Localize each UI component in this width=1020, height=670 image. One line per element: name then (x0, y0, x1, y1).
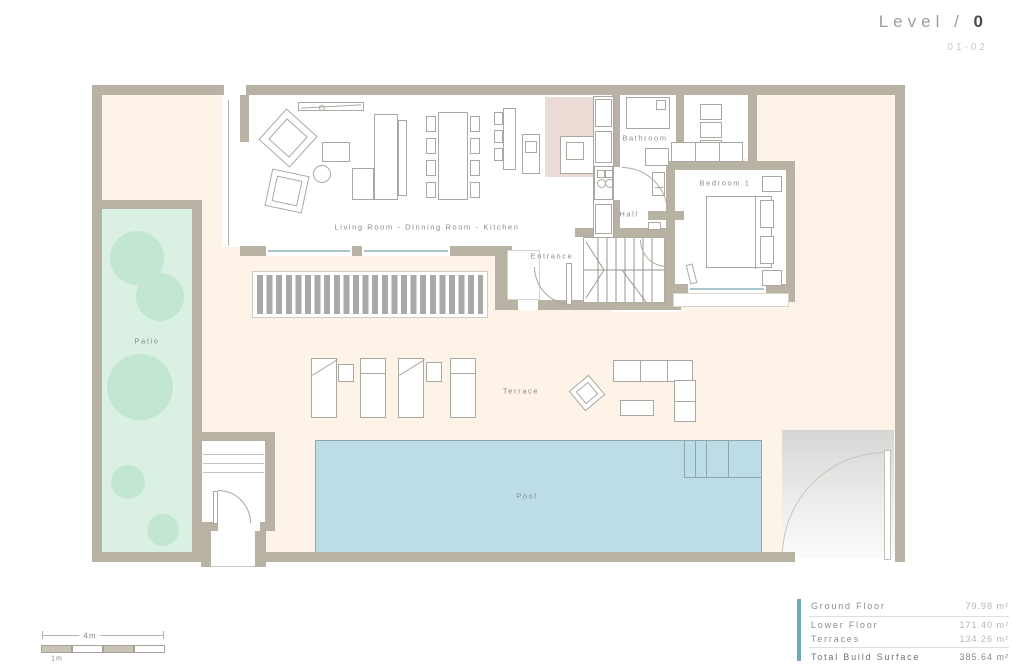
sun-lounger (311, 358, 337, 418)
row-label: Lower Floor (811, 620, 878, 630)
bedroom-closet (671, 142, 743, 162)
coffee-table (620, 400, 654, 416)
row-value: 134.26 m² (959, 634, 1009, 644)
tree-icon (136, 273, 184, 321)
scale-overall-label: 4m (79, 632, 100, 641)
scale-unit-label: 1m (51, 656, 63, 663)
kitchen-counter (503, 108, 516, 170)
side-table (338, 364, 354, 382)
outdoor-sofa-side (674, 380, 696, 422)
bed-sheet-line (755, 197, 756, 269)
lounger-back-line (361, 373, 385, 374)
patio-label: Patio (134, 337, 159, 346)
kitchen-cabinet (494, 148, 503, 161)
scale-segment (103, 645, 134, 653)
tree-icon (147, 514, 179, 546)
burner-icon (597, 170, 605, 178)
title-level-number: 0 (974, 12, 988, 31)
top-wall-window-gap (224, 85, 246, 95)
kitchen-cabinet (595, 131, 612, 163)
pool-label: Pool (516, 492, 537, 501)
side-table (322, 142, 350, 162)
row-label: Terraces (811, 634, 860, 644)
dining-chair (426, 138, 436, 154)
dimension-line (42, 635, 163, 636)
dining-chair (470, 138, 480, 154)
lounger-back-line (312, 359, 338, 376)
pergola (252, 271, 488, 318)
site-wall-right (895, 85, 905, 562)
sun-lounger (360, 358, 386, 418)
kitchen-cabinet (595, 204, 612, 234)
dimension-tick (163, 631, 164, 639)
shower-head (656, 100, 666, 110)
door-gap (218, 522, 260, 531)
outdoor-sofa-top (613, 360, 693, 382)
closet-unit (700, 122, 722, 138)
patio-wall-top (92, 200, 202, 209)
burner-icon (605, 170, 613, 178)
table-row: Ground Floor 79.98 m² (811, 599, 1009, 614)
store-box-wall-right (255, 531, 266, 567)
stove (594, 166, 613, 200)
scale-segment (72, 645, 103, 653)
dining-chair (470, 182, 480, 198)
stair-landing-marker (648, 222, 661, 230)
window-glass (268, 250, 350, 252)
kitchen-unit-inner (566, 142, 584, 160)
terrace-label: Terrace (503, 387, 539, 396)
tree-icon (111, 465, 145, 499)
bath-sink (645, 148, 669, 166)
exterior-stairs (203, 446, 264, 480)
pool-step-line (728, 441, 729, 478)
floor-plan-page: Living Room - Dinning Room - Kitchen Bat… (0, 0, 1020, 670)
bedroom-wall-left (666, 161, 675, 239)
stair-room-wall-right (265, 432, 275, 531)
round-table (313, 165, 331, 183)
site-wall-bottom (92, 552, 795, 562)
bedroom-label: Bedroom 1 (699, 179, 750, 188)
tv-console (298, 102, 364, 111)
window-glass (364, 250, 448, 252)
row-divider (809, 647, 1009, 648)
tv-icon (301, 104, 361, 108)
row-value: 79.98 m² (965, 601, 1009, 611)
sun-lounger (450, 358, 476, 418)
row-label: Ground Floor (811, 601, 886, 611)
store-box-floor (211, 531, 255, 567)
store-box-wall-left (201, 531, 211, 567)
armchair-cushion (272, 176, 303, 207)
dining-chair (426, 182, 436, 198)
title-prefix: Level / (879, 12, 964, 31)
pool-step-line (695, 441, 696, 478)
kitchen-cabinet (494, 130, 503, 143)
scale-segment (134, 645, 165, 653)
tree-icon (107, 354, 173, 420)
accent-bar (797, 599, 801, 661)
dining-chair (470, 116, 480, 132)
kitchen-cabinet (494, 112, 503, 125)
pool-step-line (706, 441, 707, 478)
door-gap (518, 300, 538, 310)
dining-chair (470, 160, 480, 176)
stair-room-wall-top (192, 432, 275, 441)
site-wall-left (92, 85, 102, 562)
total-value: 385.64 m² (959, 652, 1009, 662)
tv-knob-icon (319, 105, 325, 111)
side-table (426, 362, 442, 382)
closet-unit (700, 104, 722, 120)
sofa-chaise (352, 168, 374, 200)
row-value: 171.40 m² (959, 620, 1009, 630)
kitchen-cabinet (595, 99, 612, 127)
gate-leaf (884, 450, 891, 560)
left-window-glass (228, 100, 229, 246)
burner-icon (605, 179, 614, 188)
pillow (760, 236, 774, 264)
pergola-slats (257, 275, 483, 314)
sofa (374, 114, 398, 200)
hall-label: Hall (619, 210, 638, 219)
table-row: Terraces 134.26 m² (811, 632, 1009, 647)
lounger-back-line (399, 359, 425, 376)
sun-lounger (398, 358, 424, 418)
entrance-label: Entrance (531, 252, 574, 261)
dimension-tick (42, 631, 43, 639)
patio-wall-right (192, 200, 202, 552)
page-title: Level / 0 (879, 12, 988, 32)
scale-segment (41, 645, 72, 653)
area-summary-table: Ground Floor 79.98 m² Lower Floor 171.40… (795, 596, 1011, 666)
bedroom-wall-top (668, 161, 795, 170)
row-divider (809, 616, 1009, 617)
sheet-number: 01-02 (947, 42, 988, 53)
dining-chair (426, 116, 436, 132)
bedroom-wall-right (786, 161, 795, 302)
house-wall (240, 95, 249, 142)
window-glass (690, 288, 764, 290)
dining-chair (426, 160, 436, 176)
kitchen-island (522, 134, 540, 174)
total-label: Total Build Surface (811, 652, 920, 662)
nightstand (762, 176, 782, 192)
pillow (760, 200, 774, 228)
living-room-label: Living Room - Dinning Room - Kitchen (334, 223, 519, 232)
lounger-back-line (451, 373, 475, 374)
nightstand (762, 270, 782, 286)
table-row: Lower Floor 171.40 m² (811, 618, 1009, 633)
kitchen-island-sink (525, 141, 537, 153)
site-wall-top (92, 85, 905, 95)
bathroom-label: Bathroom (622, 134, 667, 143)
dressing-right-wall (748, 95, 757, 167)
bedroom-porch (673, 293, 789, 307)
dining-table (438, 112, 468, 200)
table-total-row: Total Build Surface 385.64 m² (811, 650, 1009, 665)
sofa-back (398, 120, 407, 196)
